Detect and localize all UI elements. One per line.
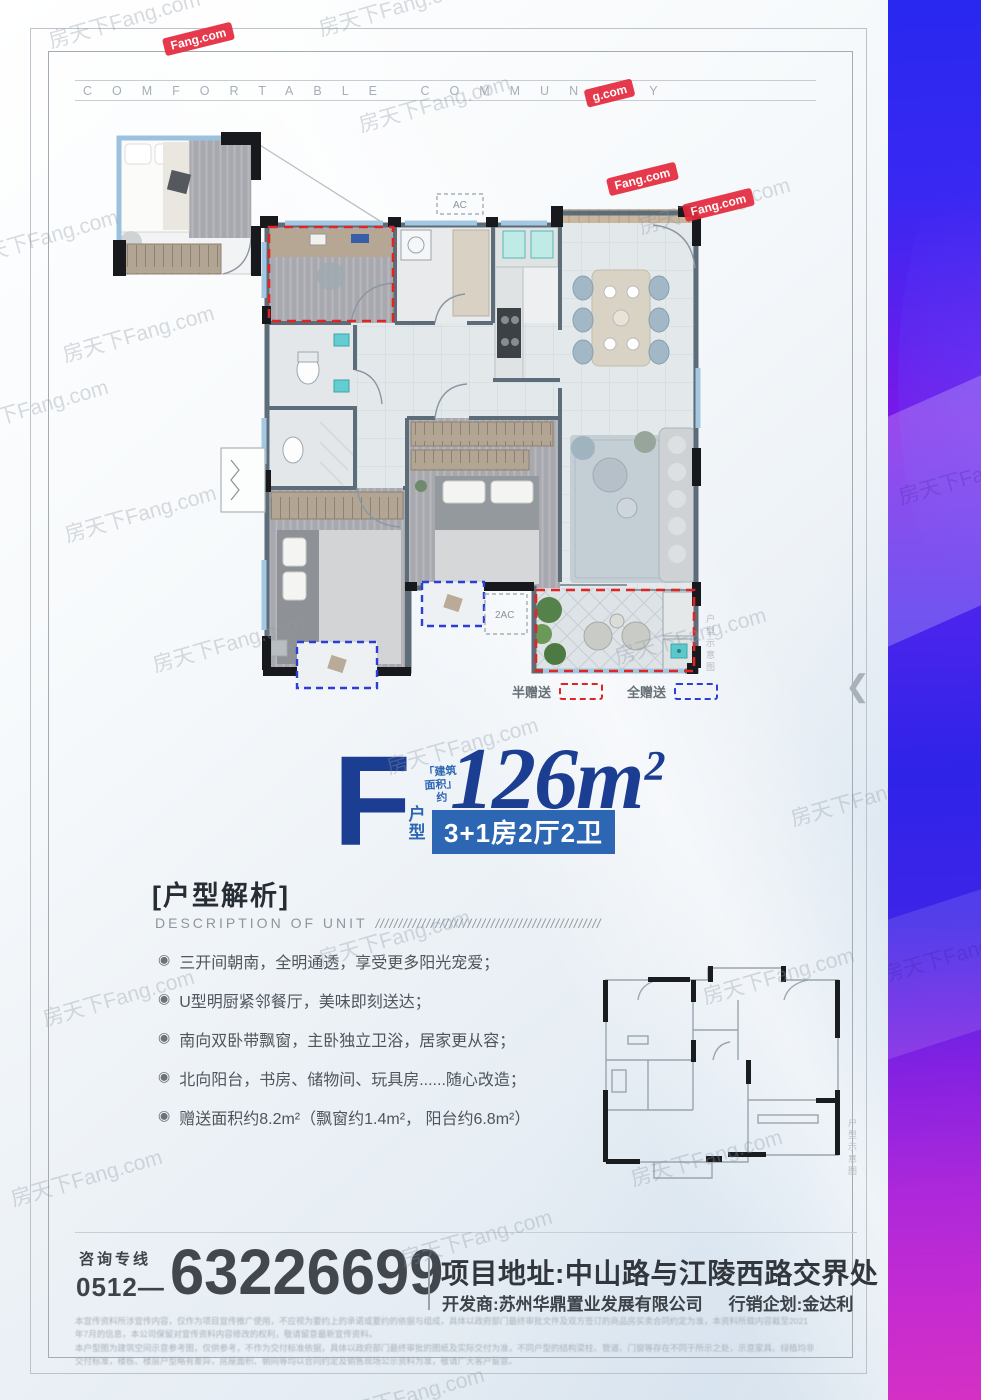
feature-list: ◉三开间朝南，全明通透，享受更多阳光宠爱； ◉U型明厨紧邻餐厅，美味即刻送达； … xyxy=(158,949,598,1144)
light-beam xyxy=(888,874,981,1066)
bullet-icon: ◉ xyxy=(158,1105,170,1125)
mini-floor-plan xyxy=(588,940,860,1198)
feature-item: ◉U型明厨紧邻餐厅，美味即刻送达； xyxy=(158,988,598,1012)
ac-label-2ac: 2AC xyxy=(495,610,514,621)
legend-half-swatch xyxy=(559,683,603,700)
hotline-phone-number: 63226699 xyxy=(170,1240,443,1304)
slashes-decoration: ////////////////////////////////////////… xyxy=(376,916,602,931)
ac-label-top: AC xyxy=(453,200,467,211)
description-title: [户型解析] xyxy=(152,874,290,913)
bullet-icon: ◉ xyxy=(158,988,170,1008)
legend-full-label: 全赠送 xyxy=(627,682,666,701)
bullet-icon: ◉ xyxy=(158,949,170,969)
feature-item: ◉北向阳台，书房、储物间、玩具房......随心改造； xyxy=(158,1066,598,1090)
marketing-planner: 行销企划:金达利 xyxy=(729,1295,854,1314)
hotline-label: 咨询专线 xyxy=(79,1248,151,1269)
feature-item: ◉南向双卧带飘窗，主卧独立卫浴，居家更从容； xyxy=(158,1027,598,1051)
developer: 开发商:苏州华鼎置业发展有限公司 xyxy=(442,1295,703,1314)
top-banner: COMFORTABLE COMMUNITY xyxy=(75,80,816,101)
unit-letter: F xyxy=(333,738,411,866)
carousel-prev-icon[interactable]: ❮ xyxy=(845,672,870,702)
bullet-icon: ◉ xyxy=(158,1066,170,1086)
right-gradient-bar: 房天下Fang.com 房天下Fang.com xyxy=(888,0,981,1400)
unit-spec-badge: 3+1房2厅2卫 xyxy=(432,810,615,854)
description-subtitle: DESCRIPTION OF UNIT/////////////////////… xyxy=(155,915,602,931)
bullet-icon: ◉ xyxy=(158,1027,170,1047)
poster-page: COMFORTABLE COMMUNITY xyxy=(0,0,981,1400)
legend-full-swatch xyxy=(674,683,718,700)
plan-side-note: 户型示意图 xyxy=(704,614,717,674)
legend-half-label: 半赠送 xyxy=(512,682,551,701)
vertical-divider xyxy=(428,1258,430,1310)
gift-legend: 半赠送 全赠送 xyxy=(512,682,718,701)
floor-plan-inset xyxy=(113,132,261,276)
feature-item: ◉三开间朝南，全明通透，享受更多阳光宠爱； xyxy=(158,949,598,973)
hotline-area-code: 0512— xyxy=(76,1272,165,1303)
developer-line: 开发商:苏州华鼎置业发展有限公司行销企划:金达利 xyxy=(442,1290,853,1315)
floor-plan: AC 2AC xyxy=(105,130,725,710)
feature-item: ◉赠送面积约8.2m²（飘窗约1.4m²， 阳台约6.8m²） xyxy=(158,1105,598,1129)
disclaimer-text: 本宣传资料所涉宣传内容，仅作为项目宣传推广使用，不应视为要约上的承诺或要约的依据… xyxy=(75,1315,859,1368)
unit-type-label: 户型 xyxy=(407,806,427,842)
project-address: 项目地址:中山路与江陵西路交界处 xyxy=(441,1252,878,1292)
contact-divider-line xyxy=(75,1232,857,1233)
mini-plan-side-note: 户型示意图 xyxy=(846,1118,859,1178)
